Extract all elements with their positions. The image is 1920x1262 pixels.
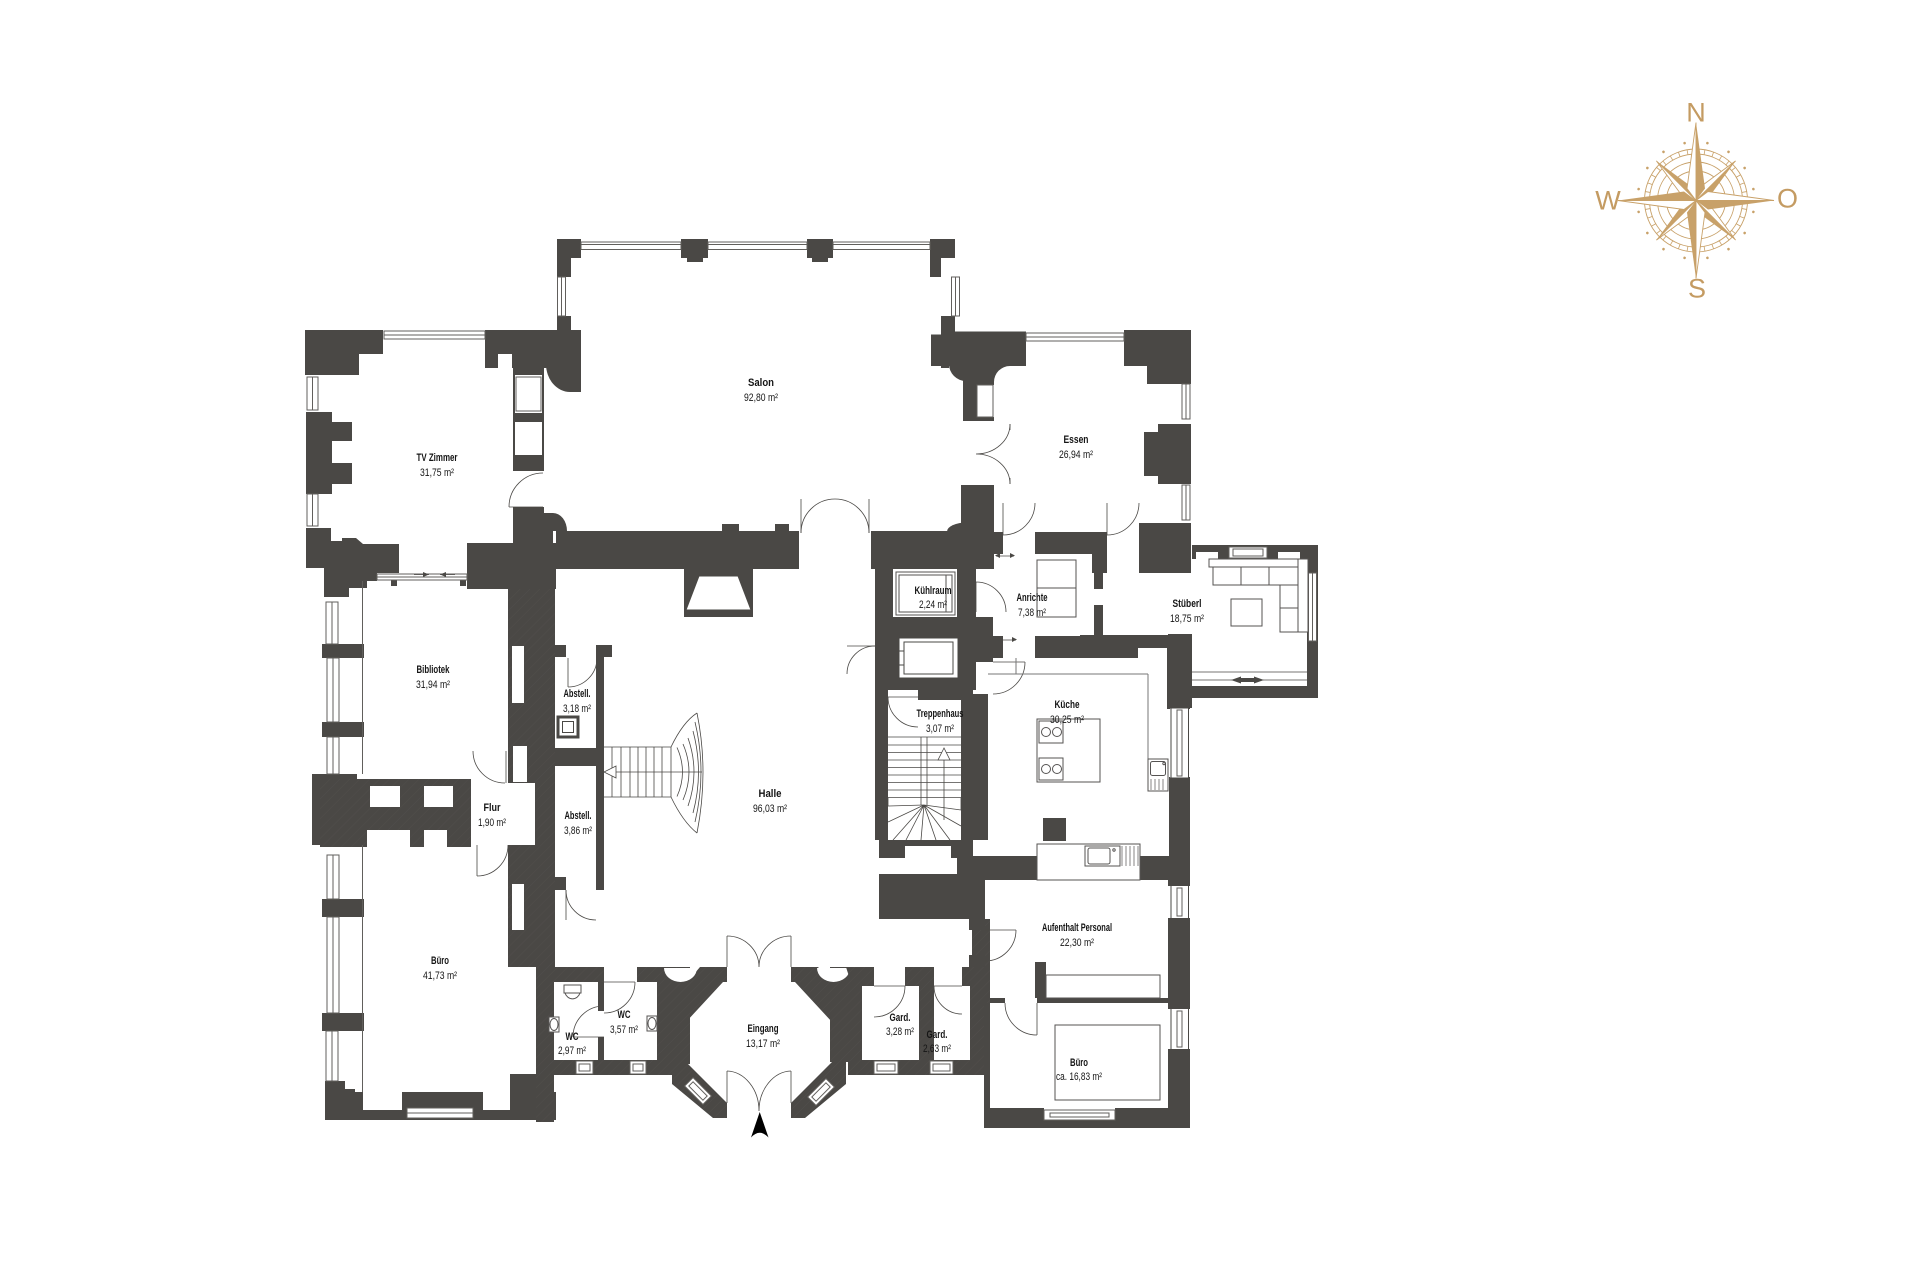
svg-text:22,30 m²: 22,30 m² bbox=[1060, 937, 1094, 949]
svg-text:2,97 m²: 2,97 m² bbox=[558, 1045, 586, 1057]
svg-text:TV Zimmer: TV Zimmer bbox=[417, 452, 459, 464]
svg-text:O: O bbox=[1777, 184, 1798, 214]
svg-text:Salon: Salon bbox=[748, 377, 774, 389]
svg-text:W: W bbox=[1595, 186, 1621, 216]
svg-text:92,80 m²: 92,80 m² bbox=[744, 392, 778, 404]
svg-text:Flur: Flur bbox=[484, 802, 502, 814]
svg-text:1,90 m²: 1,90 m² bbox=[478, 817, 506, 829]
svg-text:Büro: Büro bbox=[431, 955, 449, 967]
svg-text:WC: WC bbox=[618, 1009, 631, 1021]
svg-text:WC: WC bbox=[566, 1031, 579, 1043]
svg-text:Gard.: Gard. bbox=[890, 1012, 911, 1024]
svg-text:2,63 m²: 2,63 m² bbox=[923, 1043, 951, 1055]
svg-text:Küche: Küche bbox=[1055, 699, 1080, 711]
svg-text:3,57 m²: 3,57 m² bbox=[610, 1024, 638, 1036]
svg-text:Büro: Büro bbox=[1070, 1057, 1088, 1069]
svg-text:30,25 m²: 30,25 m² bbox=[1050, 714, 1084, 726]
svg-text:Abstell.: Abstell. bbox=[564, 688, 591, 700]
svg-text:Stüberl: Stüberl bbox=[1173, 598, 1202, 610]
svg-text:Kühlraum: Kühlraum bbox=[915, 585, 952, 597]
svg-text:31,94 m²: 31,94 m² bbox=[416, 679, 450, 691]
svg-text:3,28 m²: 3,28 m² bbox=[886, 1026, 914, 1038]
svg-text:N: N bbox=[1686, 98, 1706, 128]
svg-text:Gard.: Gard. bbox=[927, 1029, 948, 1041]
svg-text:Bibliotek: Bibliotek bbox=[417, 664, 451, 676]
svg-text:26,94 m²: 26,94 m² bbox=[1059, 449, 1093, 461]
svg-text:S: S bbox=[1688, 274, 1706, 304]
svg-text:Anrichte: Anrichte bbox=[1017, 592, 1048, 604]
svg-text:18,75 m²: 18,75 m² bbox=[1170, 613, 1204, 625]
svg-text:3,07 m²: 3,07 m² bbox=[926, 723, 954, 735]
svg-text:7,38 m²: 7,38 m² bbox=[1018, 607, 1046, 619]
svg-text:3,18 m²: 3,18 m² bbox=[563, 703, 591, 715]
svg-text:Treppenhaus: Treppenhaus bbox=[917, 708, 964, 720]
svg-text:3,86 m²: 3,86 m² bbox=[564, 825, 592, 837]
svg-text:Eingang: Eingang bbox=[748, 1023, 779, 1035]
svg-text:41,73 m²: 41,73 m² bbox=[423, 970, 457, 982]
svg-text:ca. 16,83 m²: ca. 16,83 m² bbox=[1056, 1071, 1102, 1083]
svg-text:31,75 m²: 31,75 m² bbox=[420, 467, 454, 479]
svg-text:Essen: Essen bbox=[1064, 434, 1089, 446]
svg-text:96,03 m²: 96,03 m² bbox=[753, 803, 787, 815]
svg-text:Halle: Halle bbox=[759, 788, 782, 800]
svg-text:2,24 m²: 2,24 m² bbox=[919, 599, 947, 611]
svg-text:Aufenthalt Personal: Aufenthalt Personal bbox=[1042, 922, 1112, 934]
svg-text:Abstell.: Abstell. bbox=[565, 810, 592, 822]
svg-text:13,17 m²: 13,17 m² bbox=[746, 1038, 780, 1050]
